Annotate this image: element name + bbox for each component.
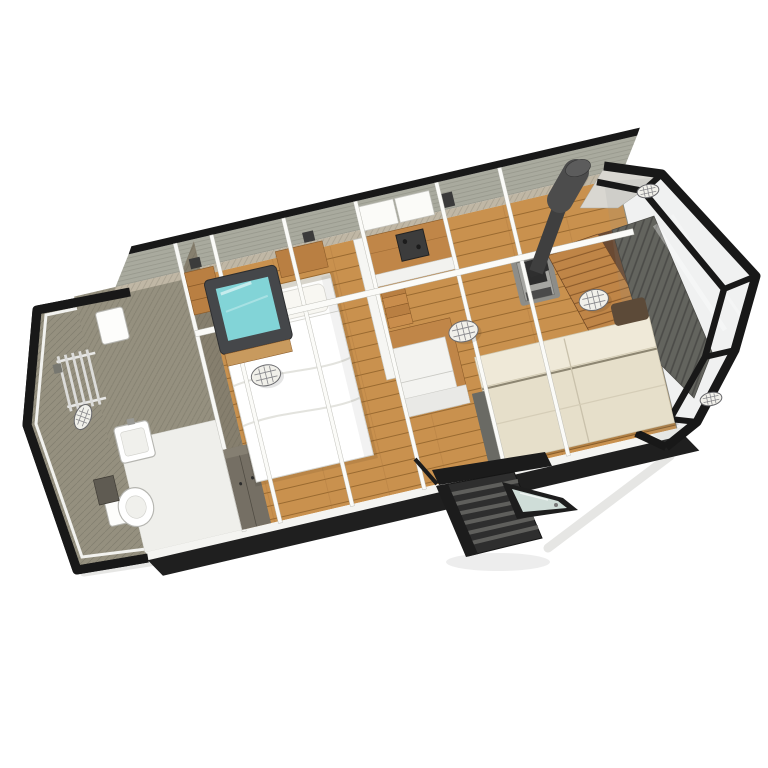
door-handle [554,503,558,507]
screenshot-root [0,0,768,768]
floorplan-render-svg [0,0,768,768]
cooktop [396,229,429,261]
